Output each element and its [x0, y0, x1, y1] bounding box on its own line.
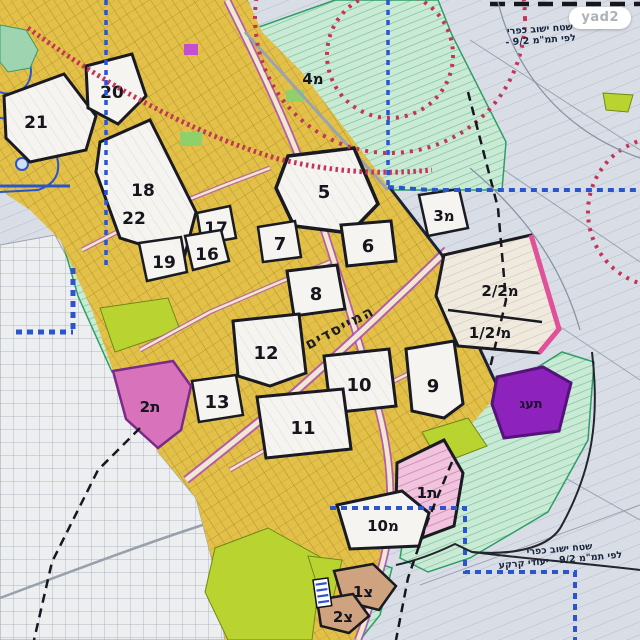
zone-3m: 3מ: [419, 189, 468, 236]
zone-9-label: 9: [427, 376, 440, 397]
zone-12-label: 12: [253, 343, 278, 364]
zone-taag: תעג: [492, 367, 571, 438]
zone-5-label: 5: [318, 182, 331, 203]
green-patch: [180, 132, 202, 146]
zone-18-label: 18: [131, 181, 155, 201]
striped-structure-icon: [313, 578, 332, 608]
zone-12: 12: [233, 314, 306, 386]
zone-2tz-label: 2צ: [333, 608, 353, 626]
zone-11-label: 11: [290, 418, 315, 439]
zone-7-label: 7: [274, 234, 287, 255]
zone-10m-label: 10מ: [367, 517, 399, 535]
zone-7: 7: [258, 221, 301, 262]
zone-2t-label: 2ת: [140, 398, 161, 416]
zone-2-2m-label: 2/2מ: [481, 282, 518, 300]
zone-6-label: 6: [362, 236, 375, 257]
zone-19-label: 19: [152, 253, 176, 273]
zone-13-label: 13: [204, 392, 229, 413]
zone-6: 6: [341, 221, 396, 266]
zone-8: 8: [287, 265, 345, 316]
zone-taag-label: תעג: [519, 397, 542, 412]
zone-8-label: 8: [310, 284, 323, 305]
zone-16-label: 16: [195, 245, 219, 265]
zone-22-label: 22: [122, 209, 146, 229]
zone-11: 11: [257, 389, 351, 458]
zone-1t-label: 1ת: [417, 484, 438, 502]
zone-13: 13: [192, 375, 243, 422]
zone-19: 19: [139, 237, 187, 281]
zone-10-label: 10: [346, 375, 371, 396]
zone-1-2m-label: 1/2 מ: [469, 324, 511, 342]
zone-9: 9: [406, 341, 463, 418]
yad2-badge-label: yad2: [581, 10, 619, 25]
zone-4m-label: 4מ: [302, 70, 323, 88]
zoning-map[interactable]: 21 20 18 22 17 19 16 5 7: [0, 0, 640, 640]
yad2-watermark-badge: yad2: [569, 7, 631, 29]
zone-21-label: 21: [24, 113, 48, 133]
structure-outline: [313, 578, 332, 608]
map-canvas: 21 20 18 22 17 19 16 5 7: [0, 0, 640, 640]
park-patch: [603, 93, 633, 112]
magenta-patch: [184, 44, 198, 55]
zone-3m-label: 3מ: [433, 207, 454, 225]
